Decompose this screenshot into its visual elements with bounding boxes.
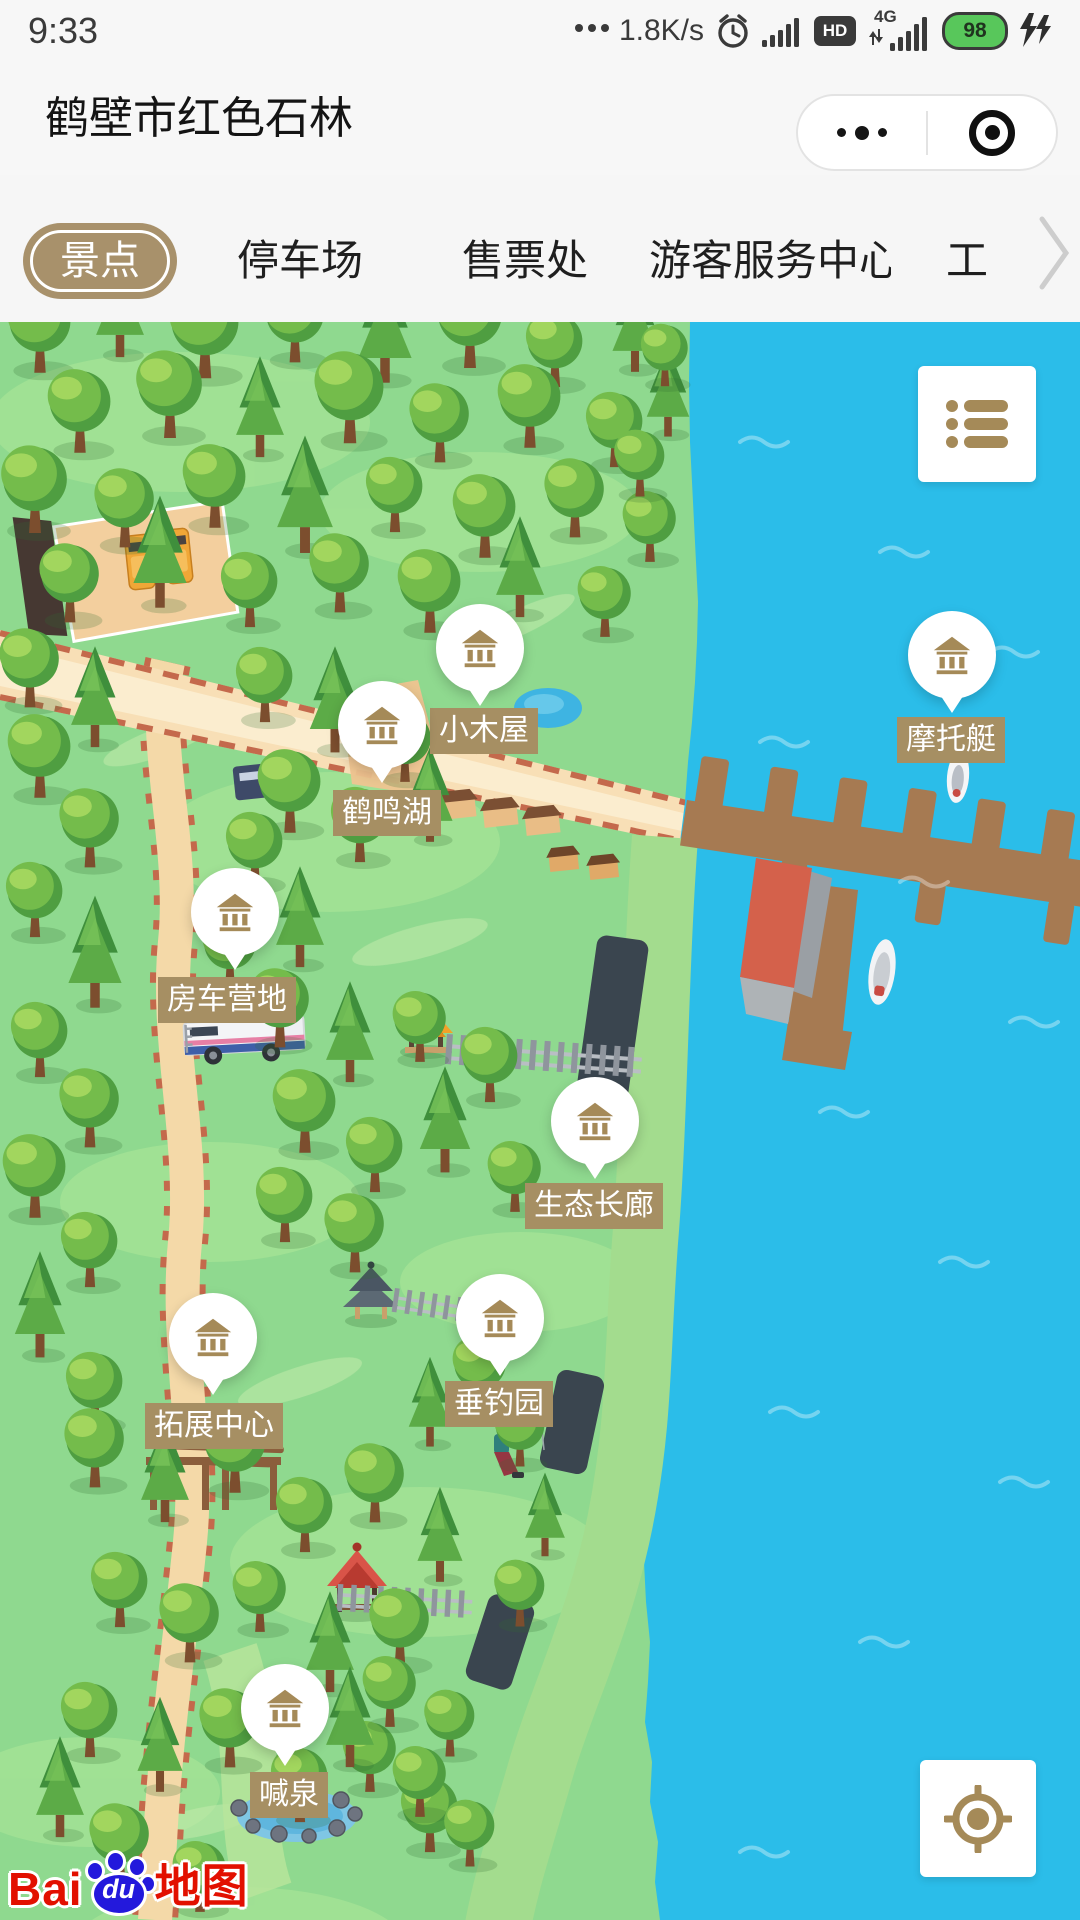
- circle-dot-icon: [969, 110, 1015, 156]
- bank-icon: [477, 1295, 523, 1341]
- map-canvas[interactable]: 小木屋 摩托艇 鹤鸣湖: [0, 322, 1080, 1920]
- poi-markers-layer: 小木屋 摩托艇 鹤鸣湖: [0, 322, 1080, 1920]
- status-icons: 1.8K/s HD 4G: [575, 9, 1052, 53]
- bank-icon: [190, 1314, 236, 1360]
- baidu-logo-latin: Bai: [8, 1862, 83, 1916]
- notification-dots-icon: [575, 24, 609, 38]
- baidu-paw-icon: du: [85, 1850, 153, 1916]
- tab-2[interactable]: 售票处: [461, 223, 589, 299]
- poi-pin-3[interactable]: [191, 868, 279, 956]
- tabs-overflow-chevron-icon: [1038, 213, 1074, 293]
- crosshair-icon: [944, 1785, 1012, 1853]
- poi-pin-4[interactable]: [551, 1077, 639, 1165]
- poi-label-3: 房车营地: [158, 977, 296, 1023]
- bank-icon: [457, 625, 503, 671]
- poi-label-4: 生态长廊: [525, 1183, 663, 1229]
- tab-0[interactable]: 景点: [23, 223, 177, 299]
- app-screen: 9:33 1.8K/s HD 4G: [0, 0, 1080, 1920]
- network-speed: 1.8K/s: [619, 14, 704, 48]
- tab-3[interactable]: 游客服务中心: [649, 223, 891, 299]
- miniprogram-capsule: [796, 94, 1058, 171]
- exit-button[interactable]: [928, 96, 1056, 169]
- bank-icon: [212, 889, 258, 935]
- category-tabs: 景点 停车场 售票处 游客服务中心 工: [0, 175, 1080, 322]
- signal-bars-icon: [762, 14, 804, 48]
- poi-pin-5[interactable]: [456, 1274, 544, 1362]
- nav-bar: 鹤壁市红色石林: [0, 62, 1080, 175]
- more-menu-button[interactable]: [798, 96, 926, 169]
- 4g-signal-icon: 4G: [866, 9, 932, 53]
- poi-pin-0[interactable]: [436, 604, 524, 692]
- poi-label-1: 摩托艇: [897, 717, 1005, 763]
- poi-pin-2[interactable]: [338, 681, 426, 769]
- baidu-maps-logo: Bai du 地图: [8, 1850, 249, 1916]
- poi-pin-7[interactable]: [241, 1664, 329, 1752]
- clock: 9:33: [28, 10, 98, 52]
- poi-list-button[interactable]: [918, 366, 1036, 482]
- poi-pin-6[interactable]: [169, 1293, 257, 1381]
- bank-icon: [262, 1685, 308, 1731]
- status-bar: 9:33 1.8K/s HD 4G: [0, 0, 1080, 62]
- list-icon: [946, 399, 1008, 449]
- poi-label-2: 鹤鸣湖: [333, 790, 441, 836]
- locate-button[interactable]: [920, 1760, 1036, 1877]
- baidu-logo-cn: 地图: [155, 1850, 249, 1916]
- alarm-clock-icon: [714, 11, 752, 51]
- bank-icon: [359, 702, 405, 748]
- charging-bolt-icon: [1018, 11, 1052, 51]
- tab-1[interactable]: 停车场: [236, 223, 364, 299]
- bank-icon: [929, 632, 975, 678]
- poi-label-5: 垂钓园: [445, 1381, 553, 1427]
- poi-pin-1[interactable]: [908, 611, 996, 699]
- poi-label-0: 小木屋: [430, 708, 538, 754]
- tab-4[interactable]: 工: [944, 223, 990, 299]
- page-title: 鹤壁市红色石林: [45, 62, 353, 175]
- poi-label-6: 拓展中心: [145, 1403, 283, 1449]
- poi-label-7: 喊泉: [250, 1772, 328, 1818]
- hd-badge: HD: [814, 16, 856, 46]
- bank-icon: [572, 1098, 618, 1144]
- battery-indicator: 98: [942, 12, 1008, 50]
